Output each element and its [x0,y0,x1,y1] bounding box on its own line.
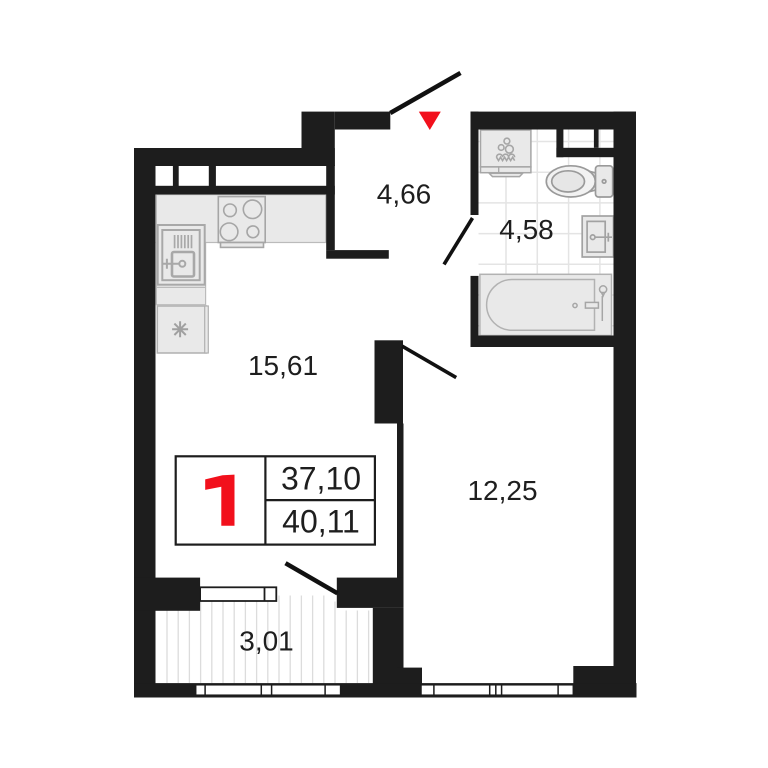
svg-text:4,66: 4,66 [377,179,432,210]
svg-text:12,25: 12,25 [467,475,537,506]
svg-text:15,61: 15,61 [248,350,318,381]
svg-text:4,58: 4,58 [499,214,554,245]
svg-text:40,11: 40,11 [282,504,360,540]
svg-text:37,10: 37,10 [281,461,361,497]
svg-text:3,01: 3,01 [239,626,294,657]
